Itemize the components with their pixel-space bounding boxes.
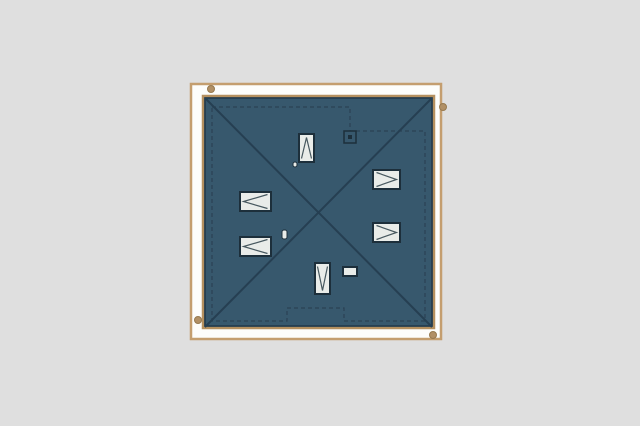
survey-dot-1 [208,86,215,93]
survey-dot-4 [430,332,437,339]
vent-pipe-small [293,162,297,167]
roof-plan-drawing [0,0,640,426]
vent-pipe [282,230,287,239]
roof-hatch [343,267,357,276]
survey-dot-2 [440,104,447,111]
survey-dot-3 [195,317,202,324]
chimney-flue-dot [348,135,352,139]
stage [0,0,640,426]
